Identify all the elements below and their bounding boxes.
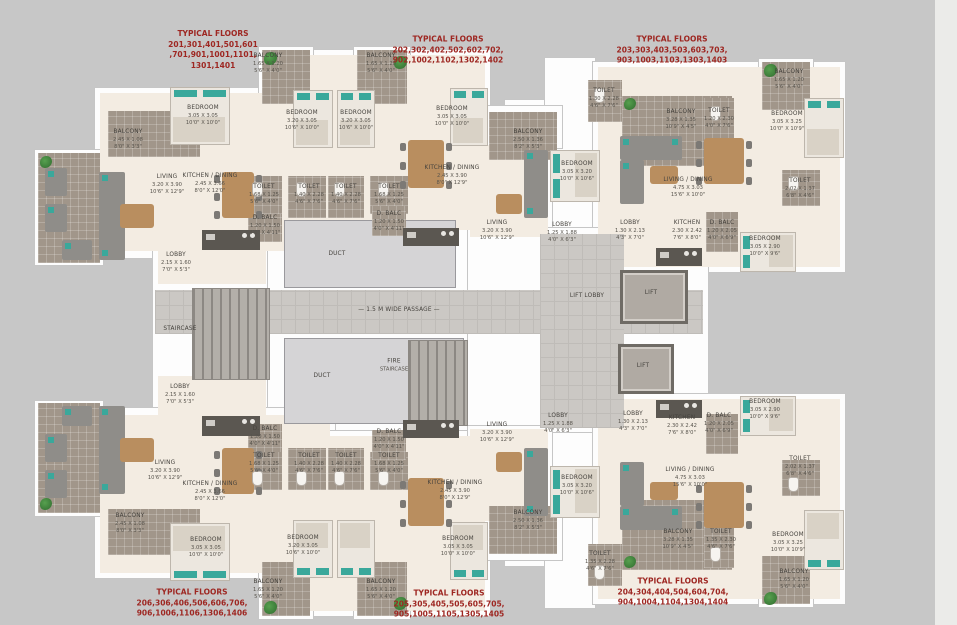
bed-icon	[450, 88, 488, 146]
toilet-wc-icon	[788, 176, 799, 191]
chair-icon	[696, 177, 702, 185]
stove-burner-icon	[250, 233, 255, 238]
tile-floor	[372, 430, 406, 460]
chair-icon	[446, 162, 452, 170]
pillow-icon	[553, 470, 560, 489]
annotation-line: TYPICAL FLOORS	[582, 34, 762, 45]
dining-table-icon	[704, 138, 744, 184]
chair-icon	[746, 521, 752, 529]
toilet-wc-icon	[252, 182, 263, 197]
toilet-wc-icon	[594, 565, 605, 580]
tile-floor	[706, 212, 738, 252]
stove-burner-icon	[684, 251, 689, 256]
chair-icon	[446, 143, 452, 151]
annotation-line: TYPICAL FLOORS	[123, 29, 303, 40]
pillow-icon	[297, 568, 310, 575]
pillow-icon	[743, 255, 750, 268]
lift-lobby-floor	[540, 234, 624, 428]
tile-floor	[372, 206, 406, 236]
sofa-icon	[524, 150, 548, 218]
blanket	[807, 129, 839, 155]
chair-icon	[214, 175, 220, 183]
sink-icon	[206, 234, 215, 240]
chair-icon	[214, 211, 220, 219]
blanket	[807, 513, 839, 539]
toilet-wc-icon	[710, 106, 721, 121]
blanket	[296, 120, 328, 145]
cushion-icon	[48, 473, 54, 479]
pillow-icon	[297, 93, 310, 100]
tile-floor	[328, 448, 364, 490]
page-edge-strip	[935, 0, 957, 625]
annotation-line: TYPICAL FLOORS	[102, 587, 282, 598]
cushion-icon	[48, 171, 54, 177]
tile-floor	[328, 176, 364, 218]
chair-icon	[746, 177, 752, 185]
pillow-icon	[553, 154, 560, 173]
blanket	[769, 399, 793, 431]
toilet-wc-icon	[788, 477, 799, 492]
cushion-icon	[65, 243, 71, 249]
bed-icon	[170, 87, 230, 145]
lift-box	[620, 270, 688, 324]
chair-icon	[446, 481, 452, 489]
pillow-icon	[174, 90, 197, 97]
chair-icon	[256, 451, 262, 459]
sofa-icon	[45, 434, 67, 462]
pillow-icon	[341, 93, 353, 100]
chair-icon	[746, 485, 752, 493]
pillow-icon	[808, 560, 821, 567]
chair-icon	[696, 159, 702, 167]
bed-icon	[550, 466, 600, 518]
stove-burner-icon	[692, 403, 697, 408]
blanket	[340, 523, 370, 548]
chair-icon	[446, 500, 452, 508]
bed-icon	[337, 90, 375, 148]
fire-staircase-treads	[408, 340, 468, 426]
sofa-icon	[45, 470, 67, 498]
sofa-icon	[62, 240, 92, 260]
stove-burner-icon	[441, 423, 446, 428]
chair-icon	[696, 141, 702, 149]
staircase-treads	[192, 288, 270, 380]
blanket	[575, 153, 597, 197]
blanket	[453, 118, 483, 143]
pillow-icon	[316, 568, 329, 575]
annotation-line: 203,303,403,503,603,703,	[582, 45, 762, 56]
pillow-icon	[743, 236, 750, 249]
annotation-line: 906,1006,1106,1306,1406	[102, 608, 282, 619]
pillow-icon	[203, 571, 226, 578]
coffee-table-icon	[120, 438, 154, 462]
chair-icon	[746, 159, 752, 167]
chair-icon	[400, 519, 406, 527]
tile-floor	[588, 80, 622, 122]
pillow-icon	[203, 90, 226, 97]
cushion-icon	[527, 208, 533, 214]
cushion-icon	[527, 153, 533, 159]
cushion-icon	[102, 250, 108, 256]
cushion-icon	[672, 509, 678, 515]
chair-icon	[746, 141, 752, 149]
pillow-icon	[743, 400, 750, 413]
stove-burner-icon	[449, 423, 454, 428]
cushion-icon	[623, 509, 629, 515]
blanket	[173, 117, 225, 142]
pillow-icon	[174, 571, 197, 578]
cushion-icon	[102, 484, 108, 490]
floor-plan-canvas: BALCONY2.45 X 1.088'0" X 3'3"BEDROOM3.05…	[0, 0, 957, 625]
chair-icon	[400, 181, 406, 189]
chair-icon	[746, 503, 752, 511]
toilet-wc-icon	[594, 88, 605, 103]
typical-floors-annotation: TYPICAL FLOORS206,306,406,506,606,706,90…	[102, 587, 282, 619]
chair-icon	[256, 211, 262, 219]
pillow-icon	[553, 179, 560, 198]
cushion-icon	[527, 506, 533, 512]
sofa-icon	[45, 168, 67, 196]
bed-icon	[170, 523, 230, 581]
bed-icon	[550, 150, 600, 202]
cushion-icon	[102, 175, 108, 181]
toilet-wc-icon	[296, 182, 307, 197]
blanket	[575, 469, 597, 513]
toilet-wc-icon	[252, 471, 263, 486]
dining-table-icon	[704, 482, 744, 528]
bed-icon	[337, 520, 375, 578]
sofa-icon	[62, 406, 92, 426]
chair-icon	[400, 143, 406, 151]
sofa-icon	[45, 204, 67, 232]
stove-burner-icon	[441, 231, 446, 236]
chair-icon	[214, 487, 220, 495]
cushion-icon	[672, 139, 678, 145]
stove-burner-icon	[692, 251, 697, 256]
chair-icon	[214, 469, 220, 477]
sink-icon	[660, 252, 669, 258]
pillow-icon	[454, 570, 466, 577]
coffee-table-icon	[650, 166, 678, 184]
bed-icon	[804, 98, 844, 158]
tile-floor	[288, 176, 326, 218]
chair-icon	[400, 481, 406, 489]
pillow-icon	[359, 568, 371, 575]
stove-burner-icon	[250, 419, 255, 424]
chair-icon	[214, 193, 220, 201]
pillow-icon	[359, 93, 371, 100]
toilet-wc-icon	[378, 471, 389, 486]
coffee-table-icon	[496, 194, 522, 214]
cushion-icon	[65, 409, 71, 415]
cushion-icon	[623, 465, 629, 471]
chair-icon	[696, 521, 702, 529]
bed-icon	[293, 90, 333, 148]
sofa-icon	[620, 462, 644, 506]
pillow-icon	[827, 101, 840, 108]
cushion-icon	[48, 437, 54, 443]
tile-floor	[706, 414, 738, 454]
coffee-table-icon	[496, 452, 522, 472]
bed-icon	[740, 396, 796, 436]
annotation-line: TYPICAL FLOORS	[358, 34, 538, 45]
stove-burner-icon	[449, 231, 454, 236]
toilet-wc-icon	[710, 547, 721, 562]
stove-burner-icon	[242, 233, 247, 238]
toilet-wc-icon	[378, 182, 389, 197]
pillow-icon	[454, 91, 466, 98]
cushion-icon	[48, 207, 54, 213]
chair-icon	[256, 487, 262, 495]
stove-burner-icon	[684, 403, 689, 408]
bed-icon	[450, 522, 488, 580]
sofa-icon	[620, 160, 644, 204]
sink-icon	[206, 420, 215, 426]
lift-box	[618, 344, 674, 394]
cushion-icon	[623, 163, 629, 169]
pillow-icon	[553, 495, 560, 514]
cushion-icon	[527, 451, 533, 457]
annotation-line: 206,306,406,506,606,706,	[102, 598, 282, 609]
dining-table-icon	[222, 448, 254, 494]
dining-table-icon	[408, 140, 444, 188]
bed-icon	[293, 520, 333, 578]
chair-icon	[214, 451, 220, 459]
blanket	[296, 523, 328, 548]
toilet-wc-icon	[334, 182, 345, 197]
chair-icon	[446, 519, 452, 527]
chair-icon	[696, 503, 702, 511]
chair-icon	[400, 162, 406, 170]
chair-icon	[446, 181, 452, 189]
blanket	[173, 526, 225, 551]
toilet-wc-icon	[296, 471, 307, 486]
coffee-table-icon	[120, 204, 154, 228]
cushion-icon	[102, 409, 108, 415]
tile-floor	[704, 524, 734, 568]
pillow-icon	[743, 419, 750, 432]
pillow-icon	[808, 101, 821, 108]
sofa-icon	[524, 448, 548, 516]
sofa-icon	[620, 136, 682, 160]
blanket	[340, 120, 370, 145]
sink-icon	[660, 404, 669, 410]
tile-floor	[288, 448, 326, 490]
pillow-icon	[827, 560, 840, 567]
sink-icon	[407, 232, 416, 238]
pillow-icon	[316, 93, 329, 100]
pillow-icon	[472, 570, 484, 577]
sink-icon	[407, 424, 416, 430]
pillow-icon	[472, 91, 484, 98]
coffee-table-icon	[650, 482, 678, 500]
bed-icon	[740, 232, 796, 272]
pillow-icon	[341, 568, 353, 575]
dining-table-icon	[408, 478, 444, 526]
blanket	[453, 525, 483, 550]
chair-icon	[696, 485, 702, 493]
tile-floor	[588, 544, 622, 586]
chair-icon	[400, 500, 406, 508]
dining-table-icon	[222, 172, 254, 218]
bed-icon	[804, 510, 844, 570]
stove-burner-icon	[242, 419, 247, 424]
sofa-icon	[620, 506, 682, 530]
toilet-wc-icon	[334, 471, 345, 486]
cushion-icon	[623, 139, 629, 145]
blanket	[769, 235, 793, 267]
